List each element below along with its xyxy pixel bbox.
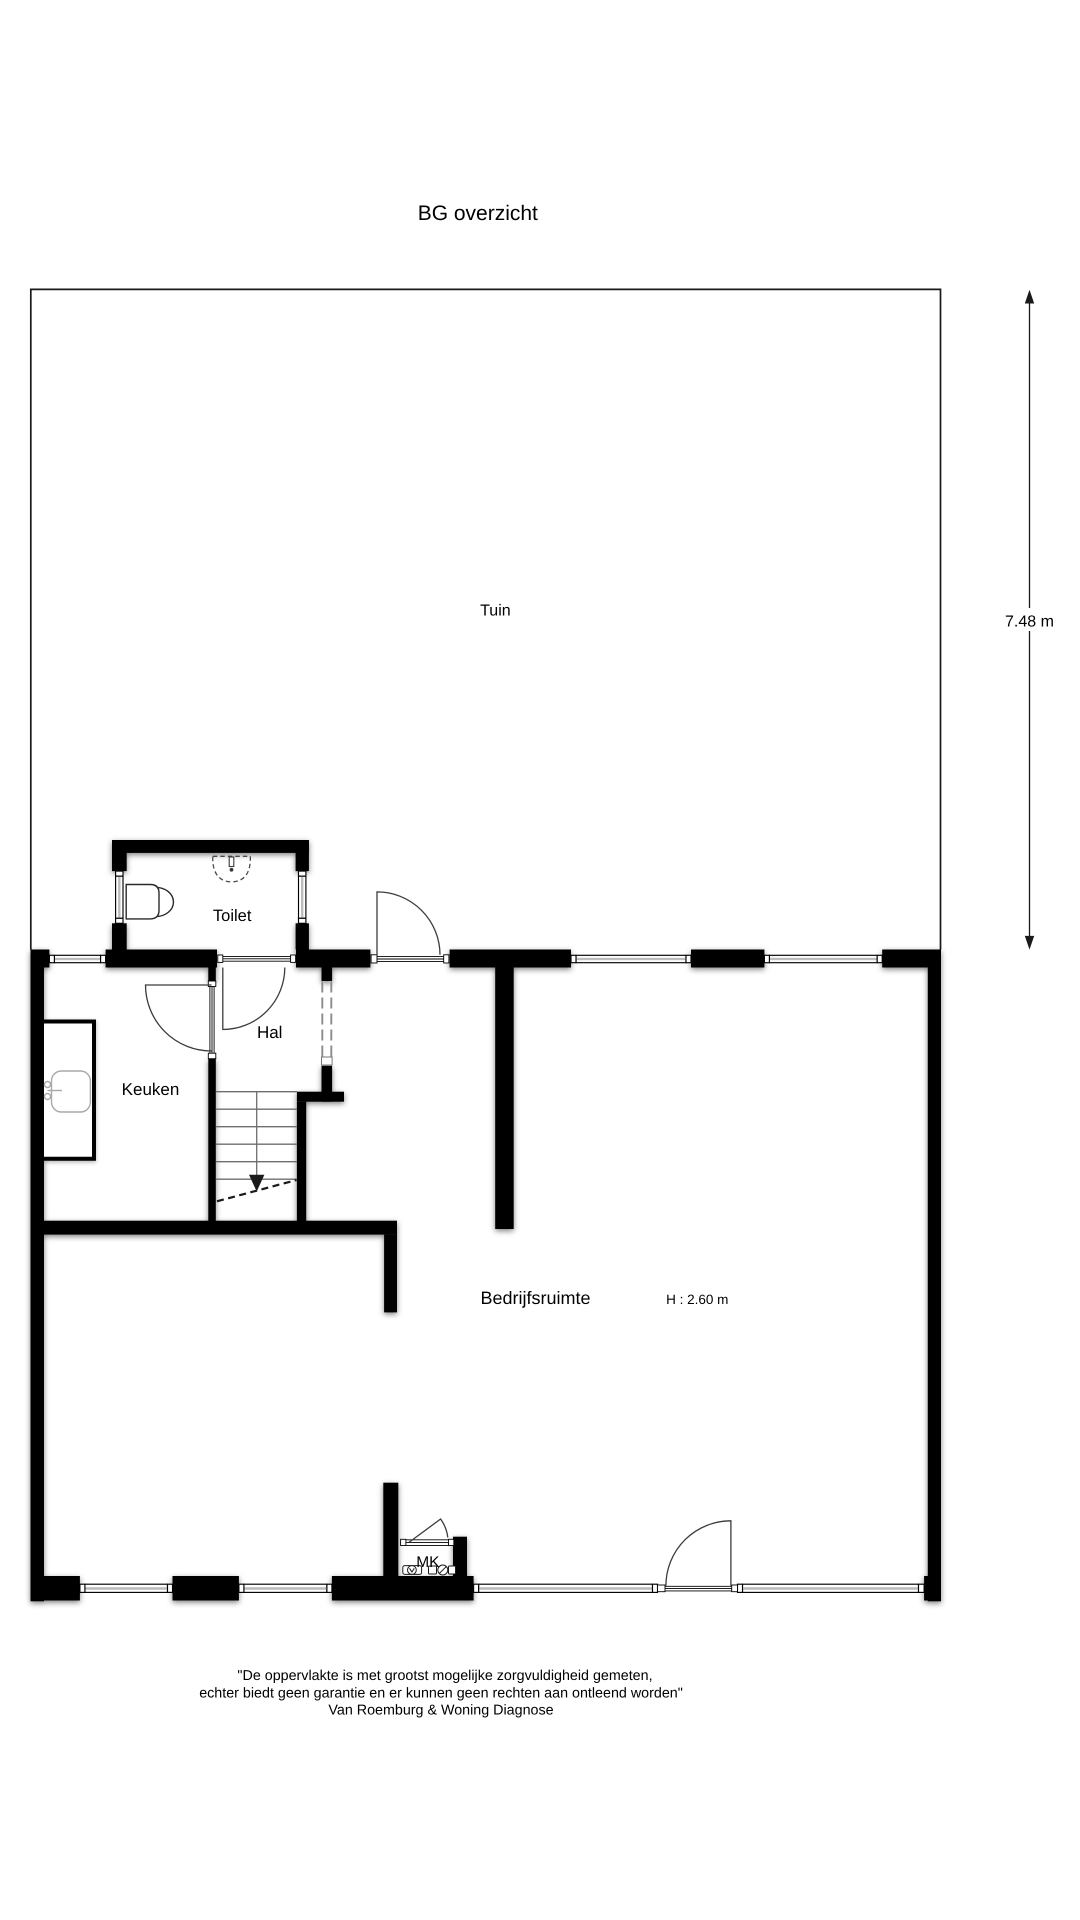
svg-text:Bedrijfsruimte: Bedrijfsruimte bbox=[480, 1288, 590, 1308]
svg-text:"De oppervlakte is met grootst: "De oppervlakte is met grootst mogelijke… bbox=[237, 1668, 652, 1684]
svg-text:Van Roemburg & Woning Diagnose: Van Roemburg & Woning Diagnose bbox=[328, 1702, 553, 1718]
svg-text:Hal: Hal bbox=[257, 1023, 283, 1042]
svg-text:Toilet: Toilet bbox=[213, 907, 252, 925]
svg-text:MK: MK bbox=[416, 1554, 440, 1571]
svg-text:Tuin: Tuin bbox=[480, 603, 511, 620]
svg-text:H : 2.60 m: H : 2.60 m bbox=[666, 1292, 728, 1307]
svg-text:echter biedt geen garantie en: echter biedt geen garantie en er kunnen … bbox=[199, 1686, 683, 1702]
svg-text:BG overzicht: BG overzicht bbox=[418, 202, 538, 225]
svg-text:7.48 m: 7.48 m bbox=[1005, 613, 1054, 630]
svg-text:Keuken: Keuken bbox=[122, 1080, 180, 1099]
